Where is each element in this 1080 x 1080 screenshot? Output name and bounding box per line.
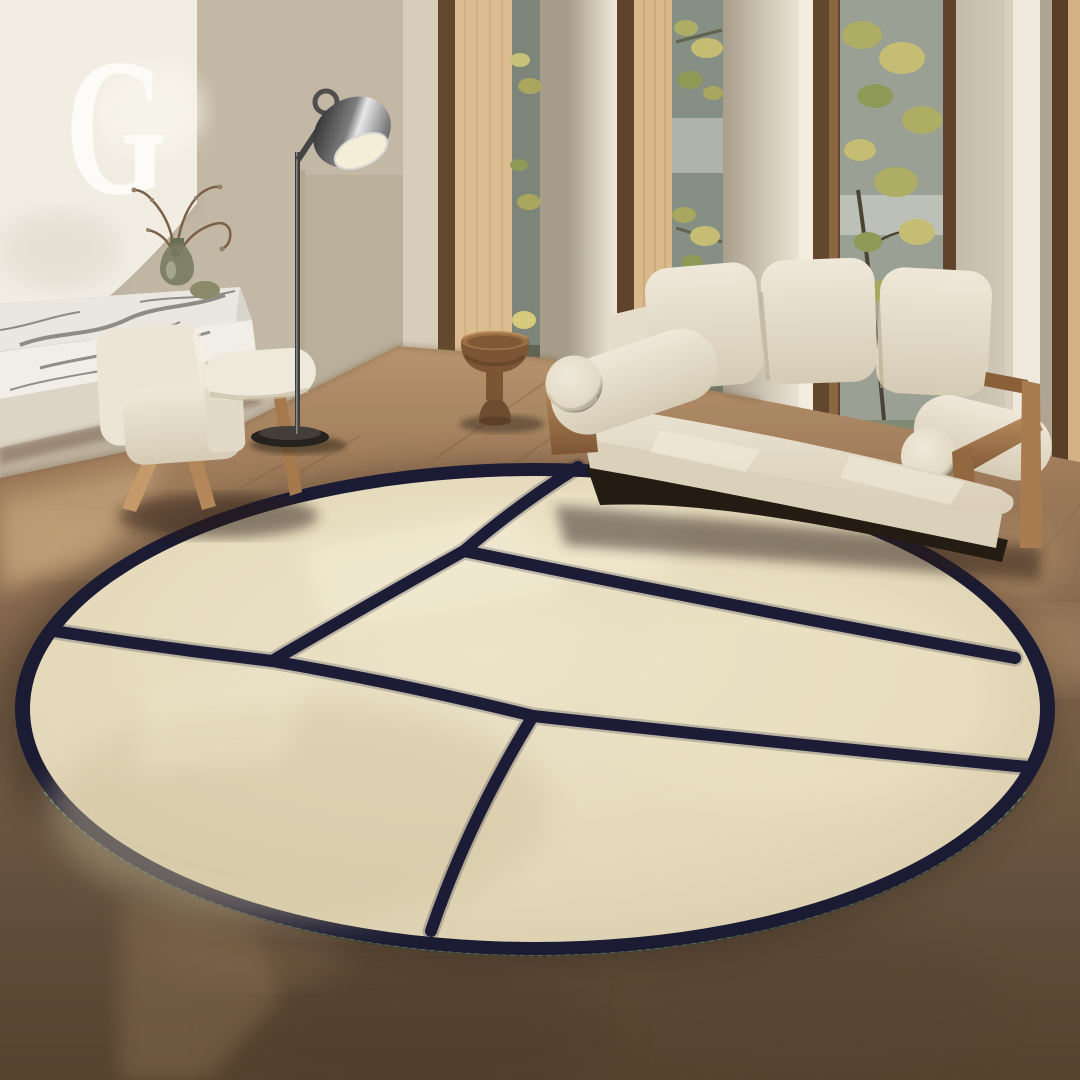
product-photo: G bbox=[0, 0, 1080, 1080]
overlay-letter-g: G bbox=[65, 19, 167, 236]
scene: G bbox=[0, 0, 1080, 1080]
slot-window bbox=[510, 0, 542, 385]
